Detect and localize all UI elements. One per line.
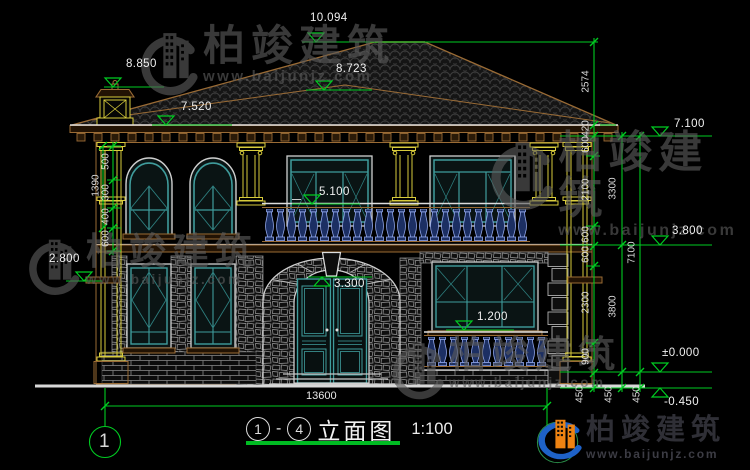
dim-7100: 7100 [627, 230, 638, 276]
cad-elevation-screenshot: 10.094 8.850 8.723 7.520 7.100 5.100 3.8… [0, 0, 750, 470]
eave-fascia [70, 125, 618, 143]
company-logo-icon [536, 415, 582, 465]
arched-window [123, 158, 175, 239]
dim-3800: 3800 [608, 284, 619, 330]
level-first-floor: ±0.000 [662, 347, 700, 359]
right-bay-window [428, 262, 542, 336]
level-balcony-rail: 5.100 [319, 186, 350, 198]
dim-2574: 2574 [581, 59, 592, 105]
level-eave: 7.520 [181, 101, 212, 113]
dim-total-width: 13600 [306, 390, 337, 402]
entrance [263, 253, 400, 386]
axis-bubble-1: 1 [99, 431, 110, 453]
ground-line [35, 385, 645, 388]
dim-450-a: 450 [575, 372, 586, 418]
title-axis-to: 4 [287, 417, 311, 441]
title-axis-from: 1 [246, 417, 270, 441]
company-logo: 柏竣建筑 www.baijunjz.com [536, 415, 726, 465]
level-ridge: 10.094 [310, 12, 348, 24]
dim-600-a: 600 [581, 122, 592, 168]
dim-450-b: 450 [604, 372, 615, 418]
title-scale: 1:100 [411, 420, 452, 439]
dim-600-d: 600 [101, 216, 112, 262]
column-pair [237, 143, 265, 205]
level-second-floor: 3.800 [672, 225, 703, 237]
level-grade: -0.450 [664, 396, 699, 408]
level-entry-arch: 3.300 [334, 278, 365, 290]
company-logo-url: www.baijunjz.com [586, 447, 726, 461]
title-underline [246, 441, 400, 445]
balcony-balustrade [262, 204, 530, 242]
porch-balustrade [424, 332, 548, 370]
level-side-ledge: 2.800 [49, 253, 80, 265]
title-separator: - [276, 420, 281, 438]
left-ledge [86, 277, 120, 283]
company-logo-brand: 柏竣建筑 [586, 415, 726, 447]
dim-600-c: 600 [581, 232, 592, 278]
level-window-sill: 1.200 [477, 311, 508, 323]
dim-3300: 3300 [608, 166, 619, 212]
roof [72, 42, 616, 125]
corner-quoins [548, 254, 568, 384]
level-chimney-top: 8.850 [126, 58, 157, 70]
dim-2100: 2100 [581, 167, 592, 213]
dim-2300: 2300 [581, 280, 592, 326]
first-floor-window [123, 264, 175, 353]
level-back-ridge: 8.723 [336, 63, 367, 75]
dim-1390: 1390 [91, 163, 102, 209]
level-eave-right: 7.100 [674, 118, 705, 130]
dim-450-c: 450 [632, 372, 643, 418]
